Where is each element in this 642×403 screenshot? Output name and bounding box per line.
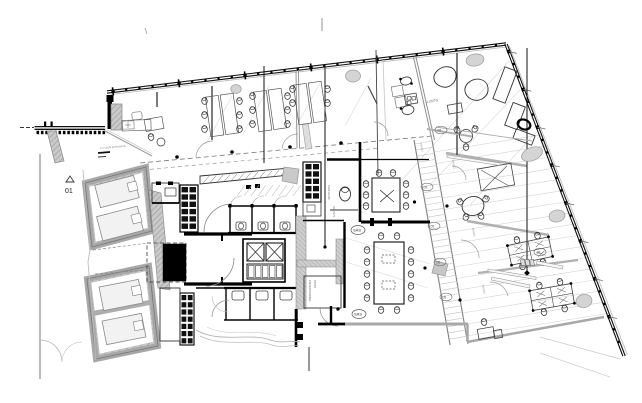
svg-text:SAS: SAS	[353, 228, 361, 233]
svg-text:SAS: SAS	[354, 312, 362, 317]
svg-text:05: 05	[438, 128, 442, 132]
svg-text:05: 05	[431, 224, 435, 228]
svg-text:01: 01	[65, 188, 73, 195]
svg-text:POM.GOSP: POM.GOSP	[327, 185, 331, 200]
svg-text:05: 05	[424, 185, 428, 189]
svg-text:WC NPS: WC NPS	[332, 206, 336, 217]
svg-text:PRZEDSIONEK: PRZEDSIONEK	[308, 280, 312, 302]
svg-text:05: 05	[443, 295, 447, 299]
svg-text:05: 05	[437, 260, 441, 264]
svg-text:PPOZ: PPOZ	[313, 280, 317, 288]
